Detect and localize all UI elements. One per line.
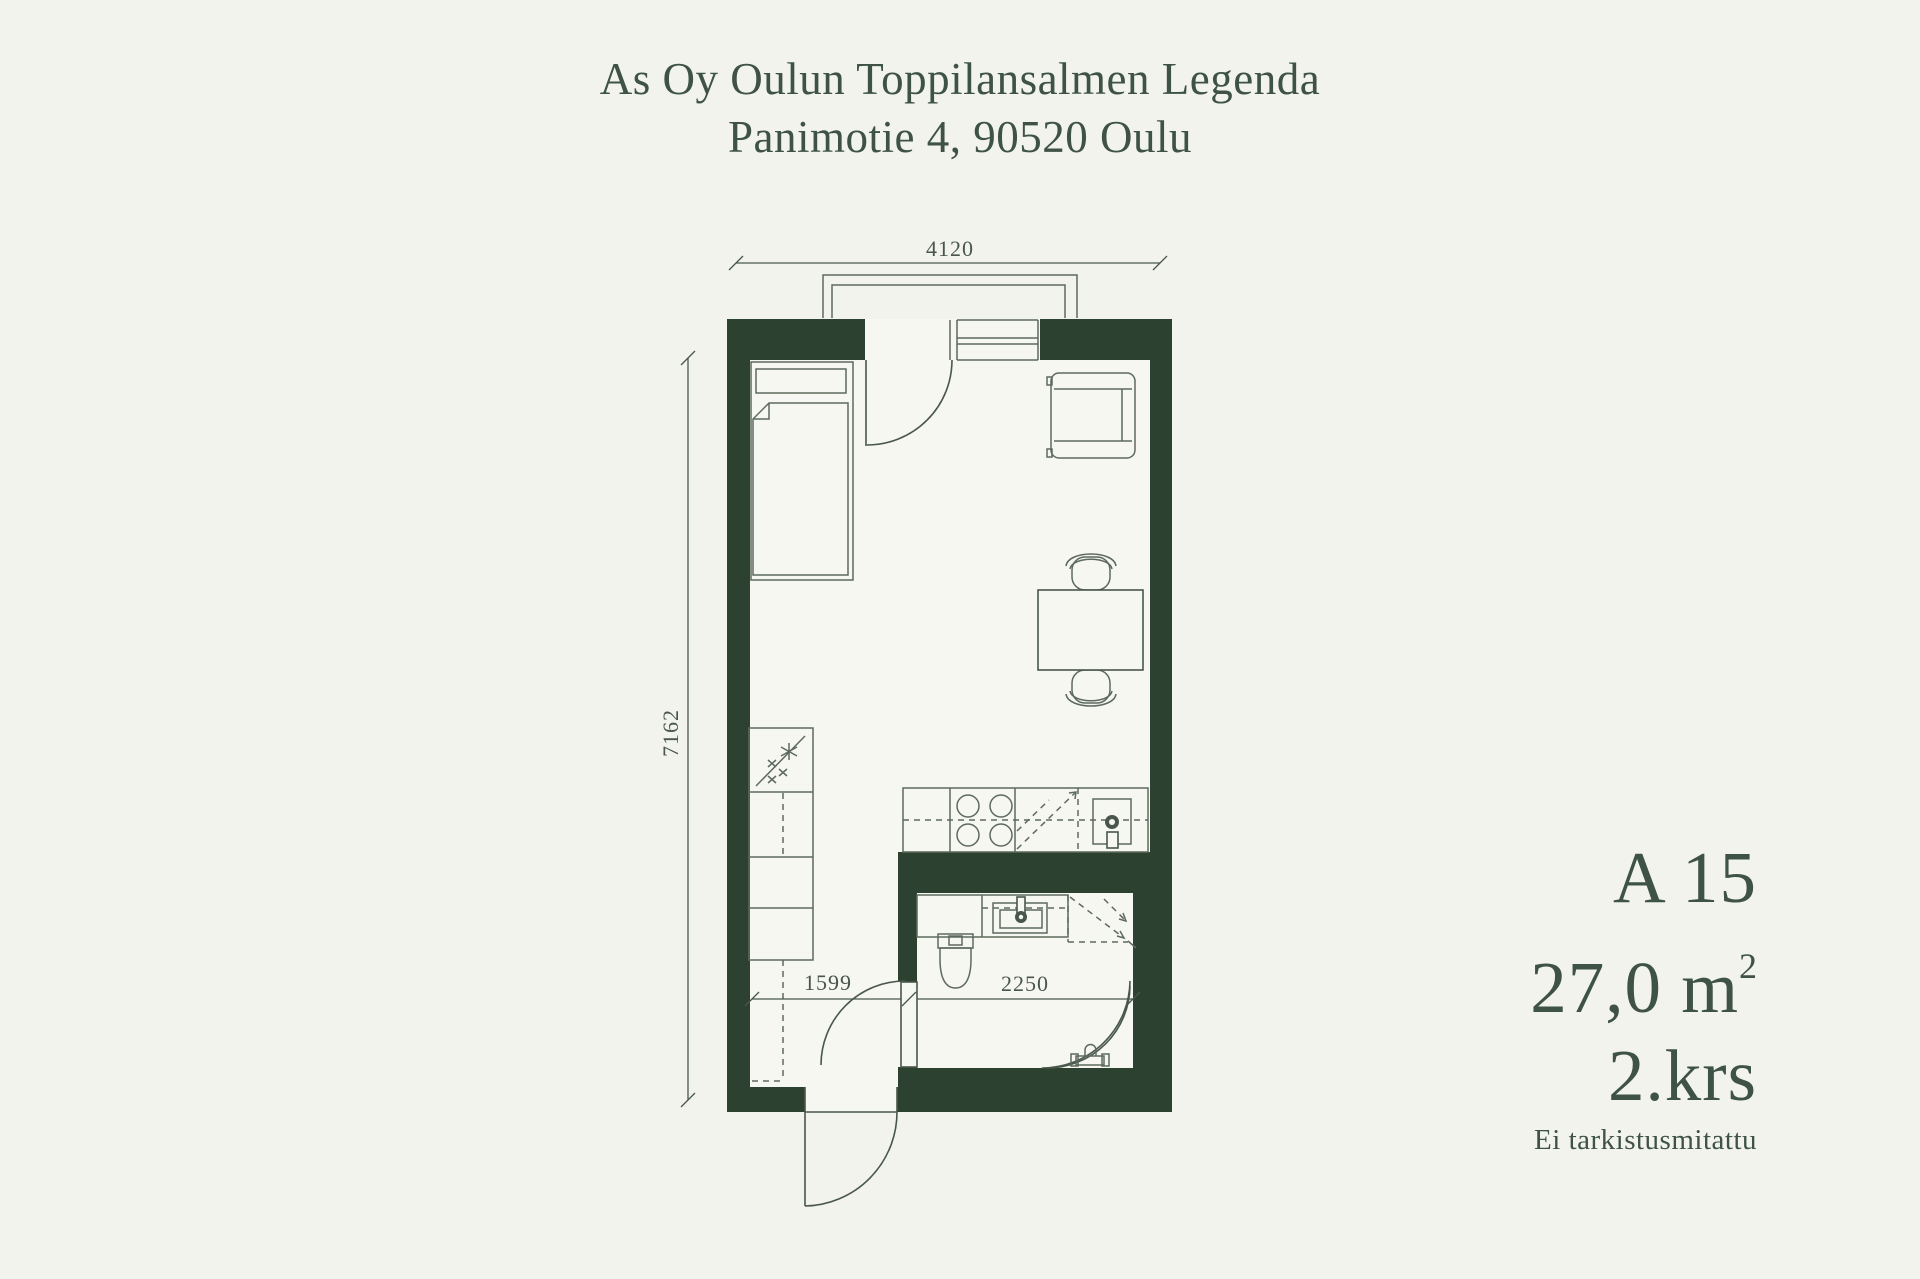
dim-hall-width: 1599 [804, 970, 852, 996]
measurement-note: Ei tarkistusmitattu [1534, 1124, 1757, 1157]
walls [727, 319, 1172, 1112]
dim-total-width: 4120 [926, 236, 974, 262]
table-top [1038, 590, 1143, 670]
dim-total-height: 7162 [658, 709, 684, 757]
balcony-outline [823, 275, 1077, 318]
balcony-opening [865, 319, 1040, 360]
apartment-area: 27,0 m2 [1530, 922, 1757, 1032]
floor-plan-page: { "header": { "title_line1": "As Oy Oulu… [0, 0, 1920, 1279]
apartment-info: A 15 27,0 m2 2.krs [1530, 834, 1757, 1120]
entry-door-opening [805, 1087, 897, 1112]
apartment-floor: 2.krs [1530, 1032, 1757, 1120]
apartment-code: A 15 [1530, 834, 1757, 922]
dim-bathroom-width: 2250 [1001, 971, 1049, 997]
area-superscript: 2 [1739, 946, 1757, 986]
